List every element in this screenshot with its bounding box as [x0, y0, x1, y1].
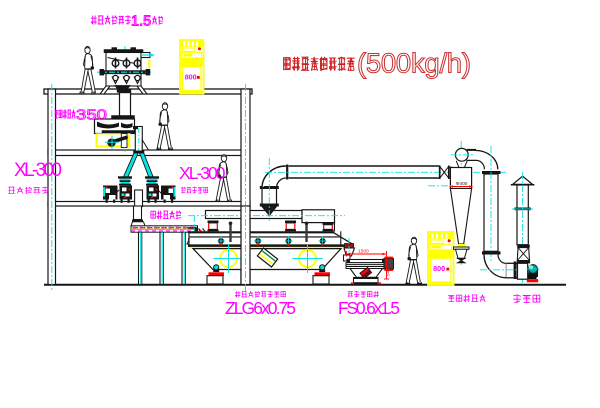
svg-text:800: 800: [185, 73, 197, 82]
svg-text:FS0.6x1.5: FS0.6x1.5: [338, 298, 400, 318]
svg-text:(500kg/h): (500kg/h): [357, 48, 471, 79]
svg-text:350: 350: [76, 107, 107, 124]
svg-text:XL-300: XL-300: [179, 163, 226, 183]
svg-text:800: 800: [433, 264, 445, 273]
svg-text:Φ400: Φ400: [456, 181, 468, 187]
svg-text:1500: 1500: [358, 249, 369, 255]
svg-text:XL-300: XL-300: [14, 160, 62, 181]
svg-text:1.5: 1.5: [131, 14, 151, 30]
svg-text:ZLG6x0.75: ZLG6x0.75: [225, 298, 296, 318]
svg-text:540: 540: [386, 268, 392, 276]
